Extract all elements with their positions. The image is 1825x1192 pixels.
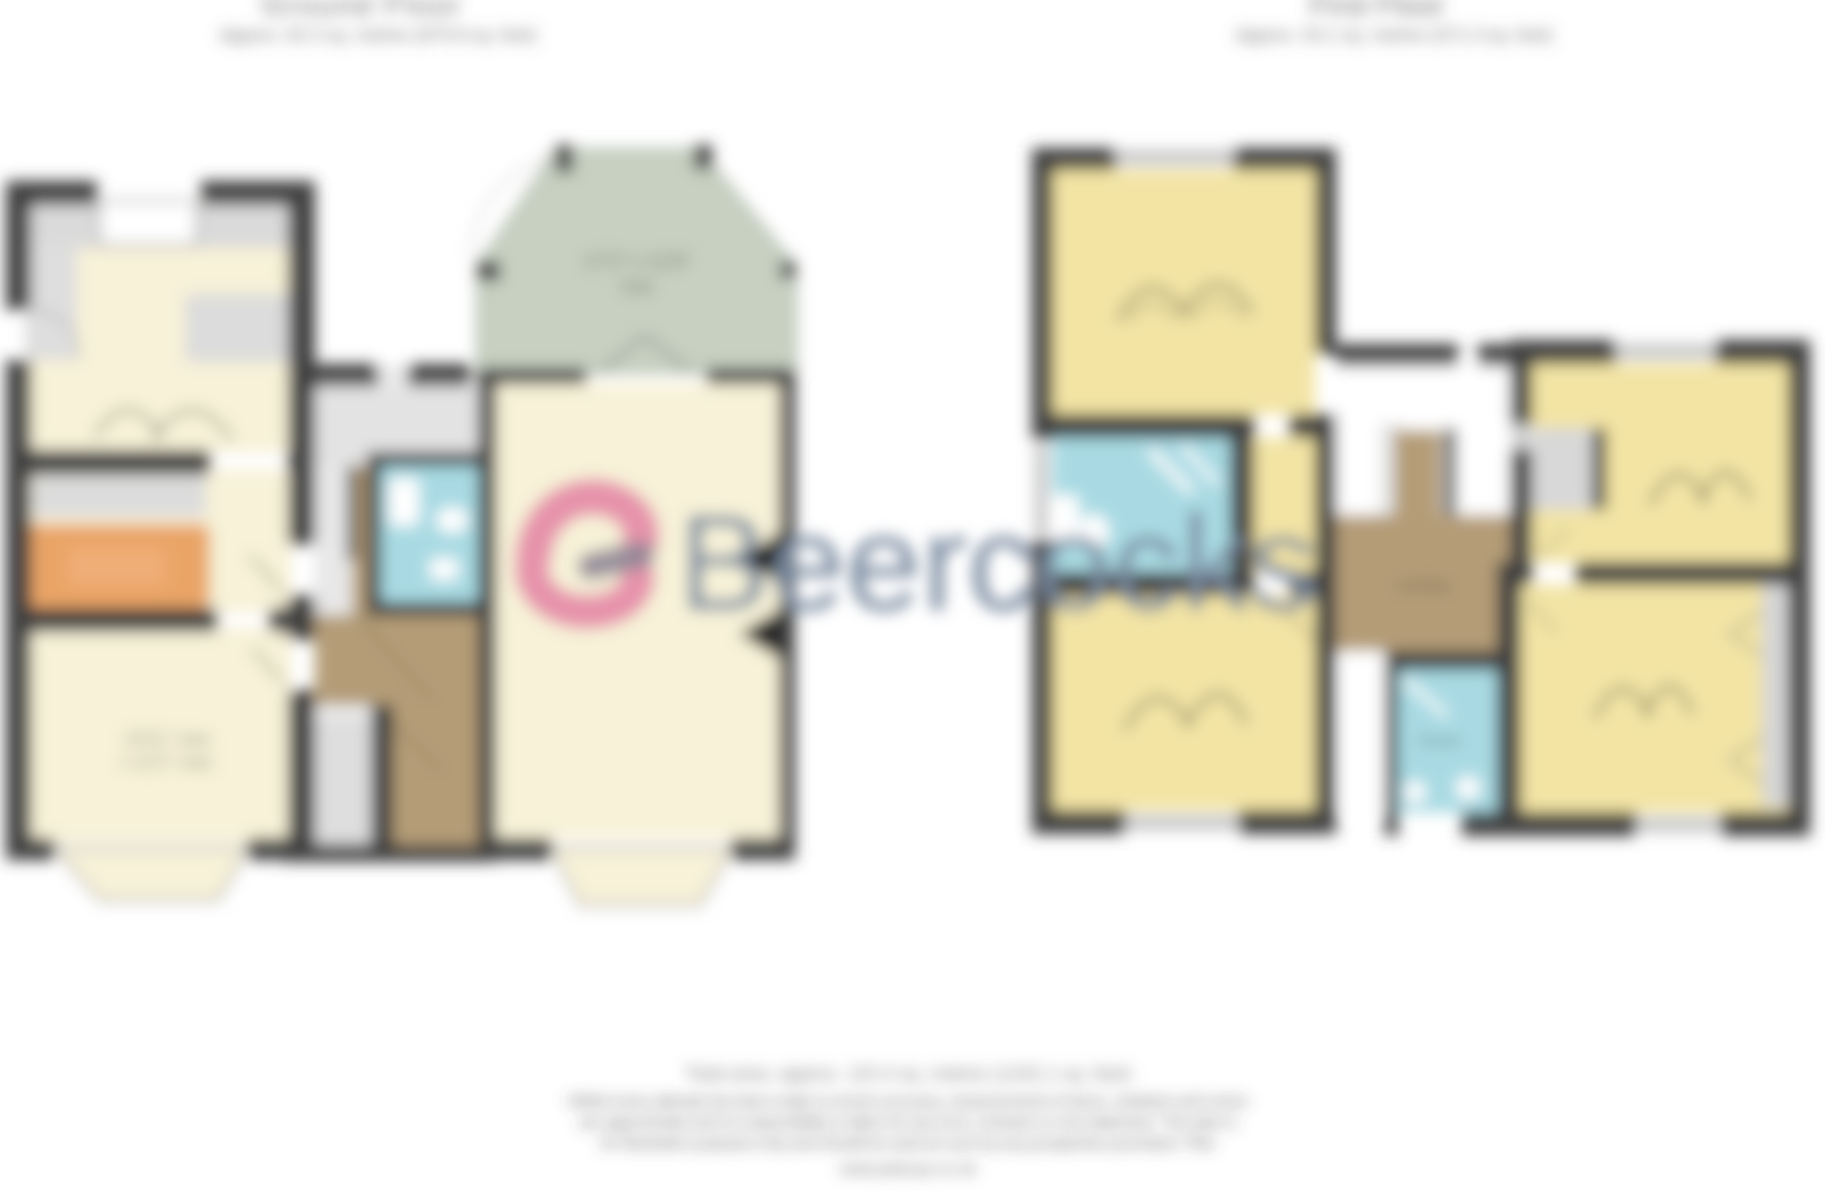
svg-text:First Floor: First Floor bbox=[1310, 0, 1445, 22]
svg-text:Approx. 62.3 sq. metres (670.8: Approx. 62.3 sq. metres (670.8 sq. feet) bbox=[219, 25, 536, 45]
svg-text:Total area: approx. 115.4 sq.: Total area: approx. 115.4 sq. metres (12… bbox=[685, 1064, 1131, 1085]
svg-text:Ground Floor: Ground Floor bbox=[262, 0, 463, 22]
svg-text:are approximate and no respons: are approximate and no responsibility is… bbox=[579, 1114, 1237, 1131]
svg-text:Landing: Landing bbox=[1395, 577, 1448, 594]
svg-text:Approx. 53.1 sq. metres (571.3: Approx. 53.1 sq. metres (571.3 sq. feet) bbox=[1235, 25, 1552, 45]
svg-text:x 11'2" max: x 11'2" max bbox=[121, 752, 213, 772]
svg-text:www.planup.co.uk: www.planup.co.uk bbox=[838, 1159, 977, 1178]
svg-text:for illustrative purposes only: for illustrative purposes only and shoul… bbox=[601, 1135, 1216, 1152]
svg-text:max: max bbox=[620, 276, 654, 296]
svg-text:17'2" x 11'6": 17'2" x 11'6" bbox=[583, 251, 691, 273]
svg-text:Whilst every attempt has been: Whilst every attempt has been made to en… bbox=[568, 1093, 1248, 1110]
svg-text:Beercocks: Beercocks bbox=[678, 487, 1318, 640]
svg-text:Shower: Shower bbox=[1418, 733, 1463, 748]
svg-text:13'11" max: 13'11" max bbox=[123, 729, 211, 749]
